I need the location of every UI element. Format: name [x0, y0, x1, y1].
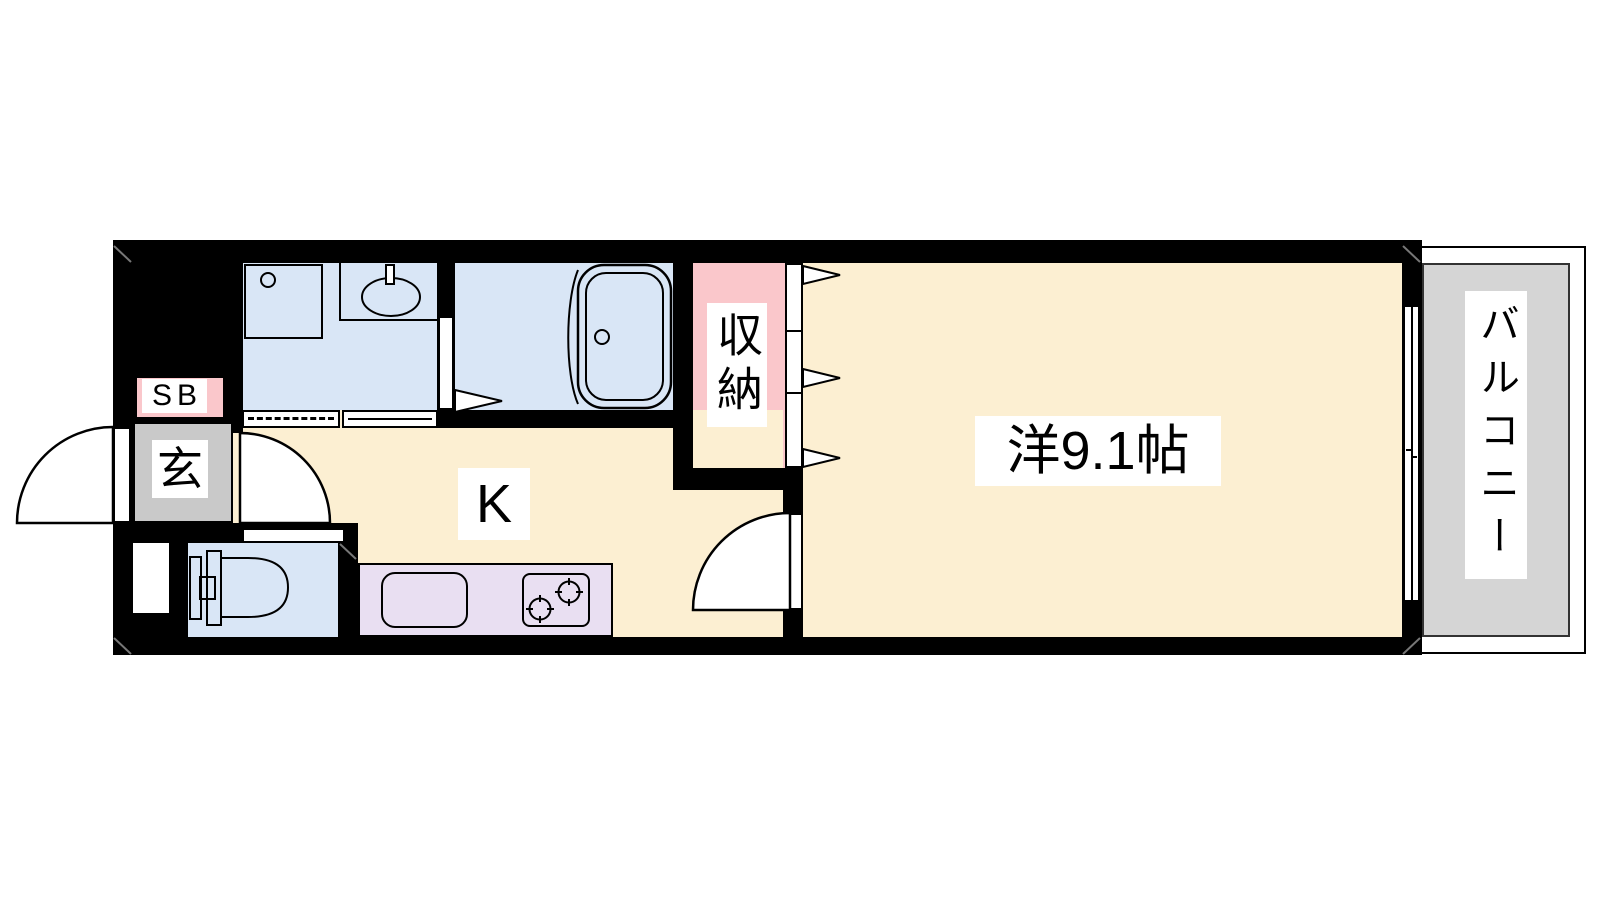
balcony-sliding-window: [1403, 305, 1420, 602]
storage-label: 収納: [707, 303, 767, 427]
shoe-box-label: SB: [142, 379, 207, 413]
balcony-text: バルコニー: [1476, 303, 1516, 568]
washroom-sliding-door: [342, 410, 438, 428]
washroom-floor: [243, 263, 437, 410]
western-room-label: 洋9.1帖: [975, 416, 1221, 486]
western-room-text: 洋9.1帖: [1006, 424, 1189, 478]
entrance-swing-arc: [17, 427, 113, 523]
balcony-label: バルコニー: [1465, 291, 1527, 579]
washroom-accordion-door: [242, 410, 340, 428]
entrance-label: 玄: [152, 440, 208, 498]
entrance-text: 玄: [157, 446, 203, 492]
storage-text: 収納: [714, 311, 760, 419]
bath-folding-door: [438, 316, 454, 410]
toilet-floor: [188, 543, 338, 637]
entrance-door-leaf: [113, 427, 131, 523]
kitchen-text: K: [476, 477, 512, 531]
room-door-leaf: [786, 513, 803, 610]
closet-folding-door: [785, 263, 803, 468]
toilet-door: [242, 528, 345, 543]
shoe-box-text: SB: [152, 381, 202, 411]
toilet-window: [133, 543, 169, 613]
kitchen-counter: [358, 563, 613, 637]
wall-storage-bottom: [673, 468, 803, 490]
floor-plan: SB 玄 K 収納 洋9.1帖 バルコニー: [0, 0, 1600, 900]
kitchen-label: K: [458, 468, 530, 540]
bathroom-floor: [455, 263, 673, 410]
wall-bath-bottom: [438, 410, 673, 428]
